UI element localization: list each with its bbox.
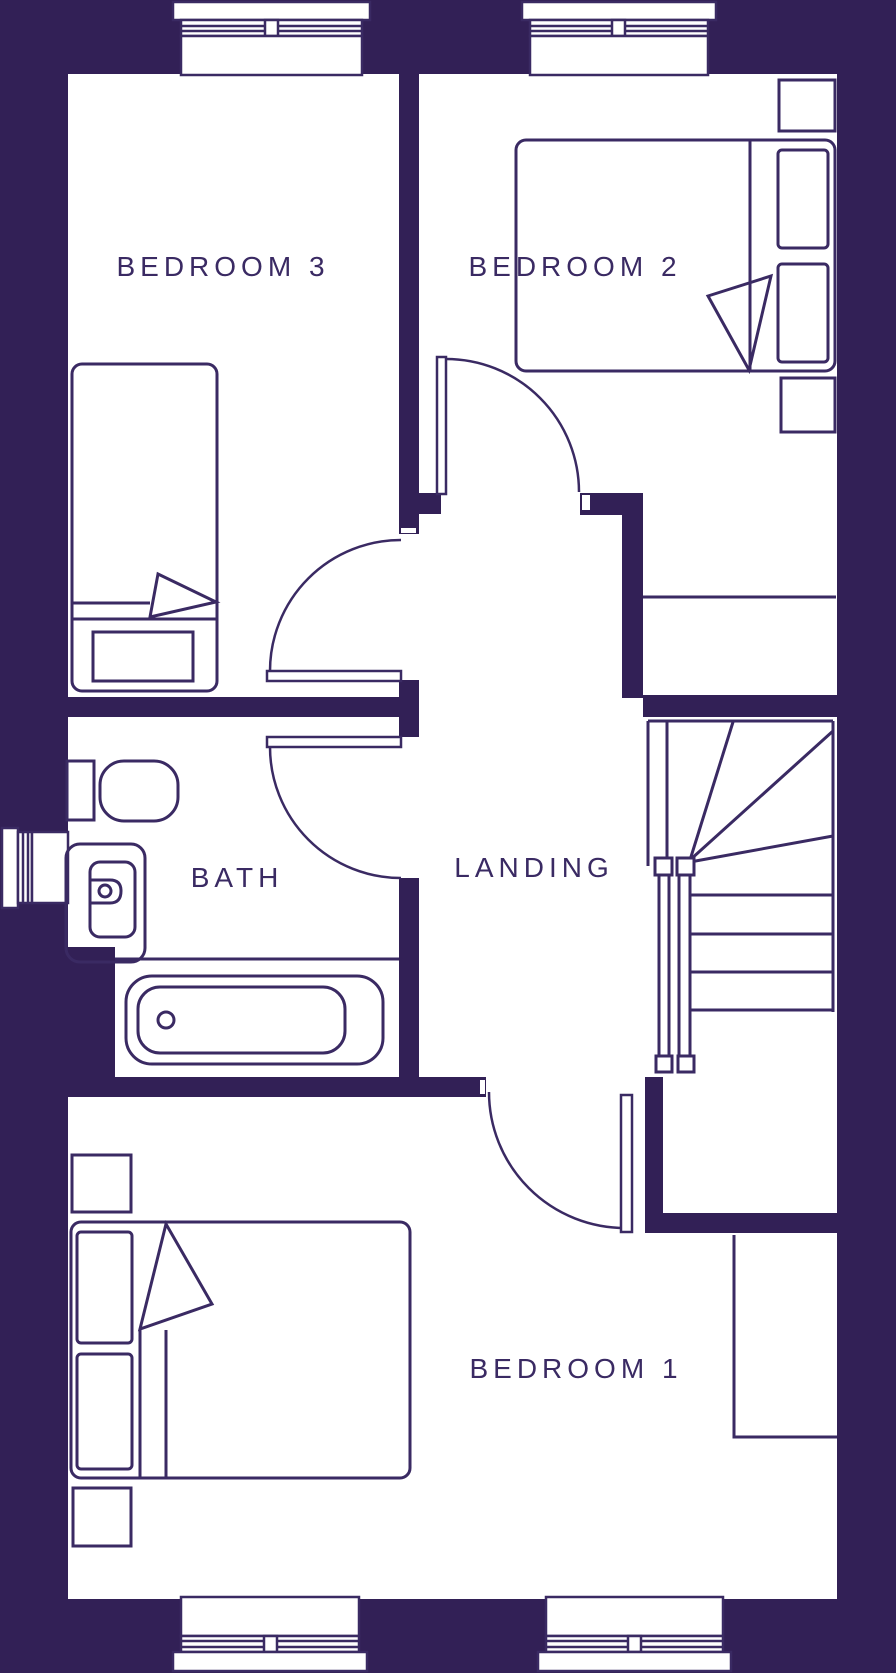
wall-stairs-north (643, 695, 837, 717)
floor-plan: BEDROOM 3 BEDROOM 2 BATH LANDING BEDROOM… (0, 0, 896, 1673)
door-leaf (437, 357, 446, 494)
wall-bath-east-lower (399, 878, 419, 1097)
wall-stairwell-south (645, 1213, 837, 1233)
wall-top (0, 0, 896, 74)
window-sill (2, 828, 18, 908)
wall-bedroom3-landing (399, 72, 419, 534)
window-inner-frame (181, 36, 362, 75)
wall-bedroom1-door-stub (645, 1077, 663, 1233)
room-label-bedroom3: BEDROOM 3 (116, 251, 329, 282)
window-sill (173, 1652, 367, 1671)
stair-newel-post (677, 858, 694, 875)
window-mullion (612, 20, 625, 36)
window-bedroom2 (522, 2, 716, 75)
door-leaf (621, 1095, 632, 1232)
wall-bedroom2-east-return (622, 513, 643, 698)
window-bedroom1-right (538, 1597, 731, 1671)
stair-newel-post (655, 858, 672, 875)
stair-newel-post (656, 1056, 672, 1072)
window-mullion (265, 20, 278, 36)
jamb-notch-bedroom1 (480, 1080, 485, 1094)
room-label-bath: BATH (191, 862, 284, 893)
window-sill (538, 1652, 731, 1671)
door-leaf (267, 671, 401, 681)
room-label-bedroom2: BEDROOM 2 (468, 251, 681, 282)
window-inner-frame (32, 832, 68, 903)
jamb-notch-bedroom2 (582, 495, 590, 510)
window-inner-frame (546, 1597, 723, 1636)
window-inner-frame (181, 1597, 359, 1636)
window-inner-frame (530, 36, 708, 75)
room-label-bedroom1: BEDROOM 1 (469, 1353, 682, 1384)
window-sill (173, 2, 370, 20)
room-label-landing: LANDING (454, 852, 613, 883)
wall-right (837, 0, 896, 1673)
jamb-notch-bedroom3 (401, 528, 416, 533)
window-bath (2, 828, 68, 908)
wall-bath-south (0, 1077, 486, 1097)
floor-plan-canvas: BEDROOM 3 BEDROOM 2 BATH LANDING BEDROOM… (0, 0, 896, 1673)
jamb-notch-bath (401, 872, 416, 877)
wall-bedroom3-bath (60, 697, 419, 717)
stair-newel-post (678, 1056, 694, 1072)
wall-bottom (0, 1599, 896, 1673)
stair-handrail-left (659, 875, 669, 1058)
window-louvre (18, 832, 32, 903)
wall-bedroom2-south-west (419, 493, 441, 514)
stair-handrail-right (679, 875, 690, 1058)
window-sill (522, 2, 716, 20)
window-bedroom3 (173, 2, 370, 75)
window-mullion (264, 1636, 277, 1652)
window-bedroom1-left (173, 1597, 367, 1671)
window-mullion (628, 1636, 641, 1652)
door-leaf (267, 737, 401, 747)
wall-bath-jog (60, 947, 115, 1097)
